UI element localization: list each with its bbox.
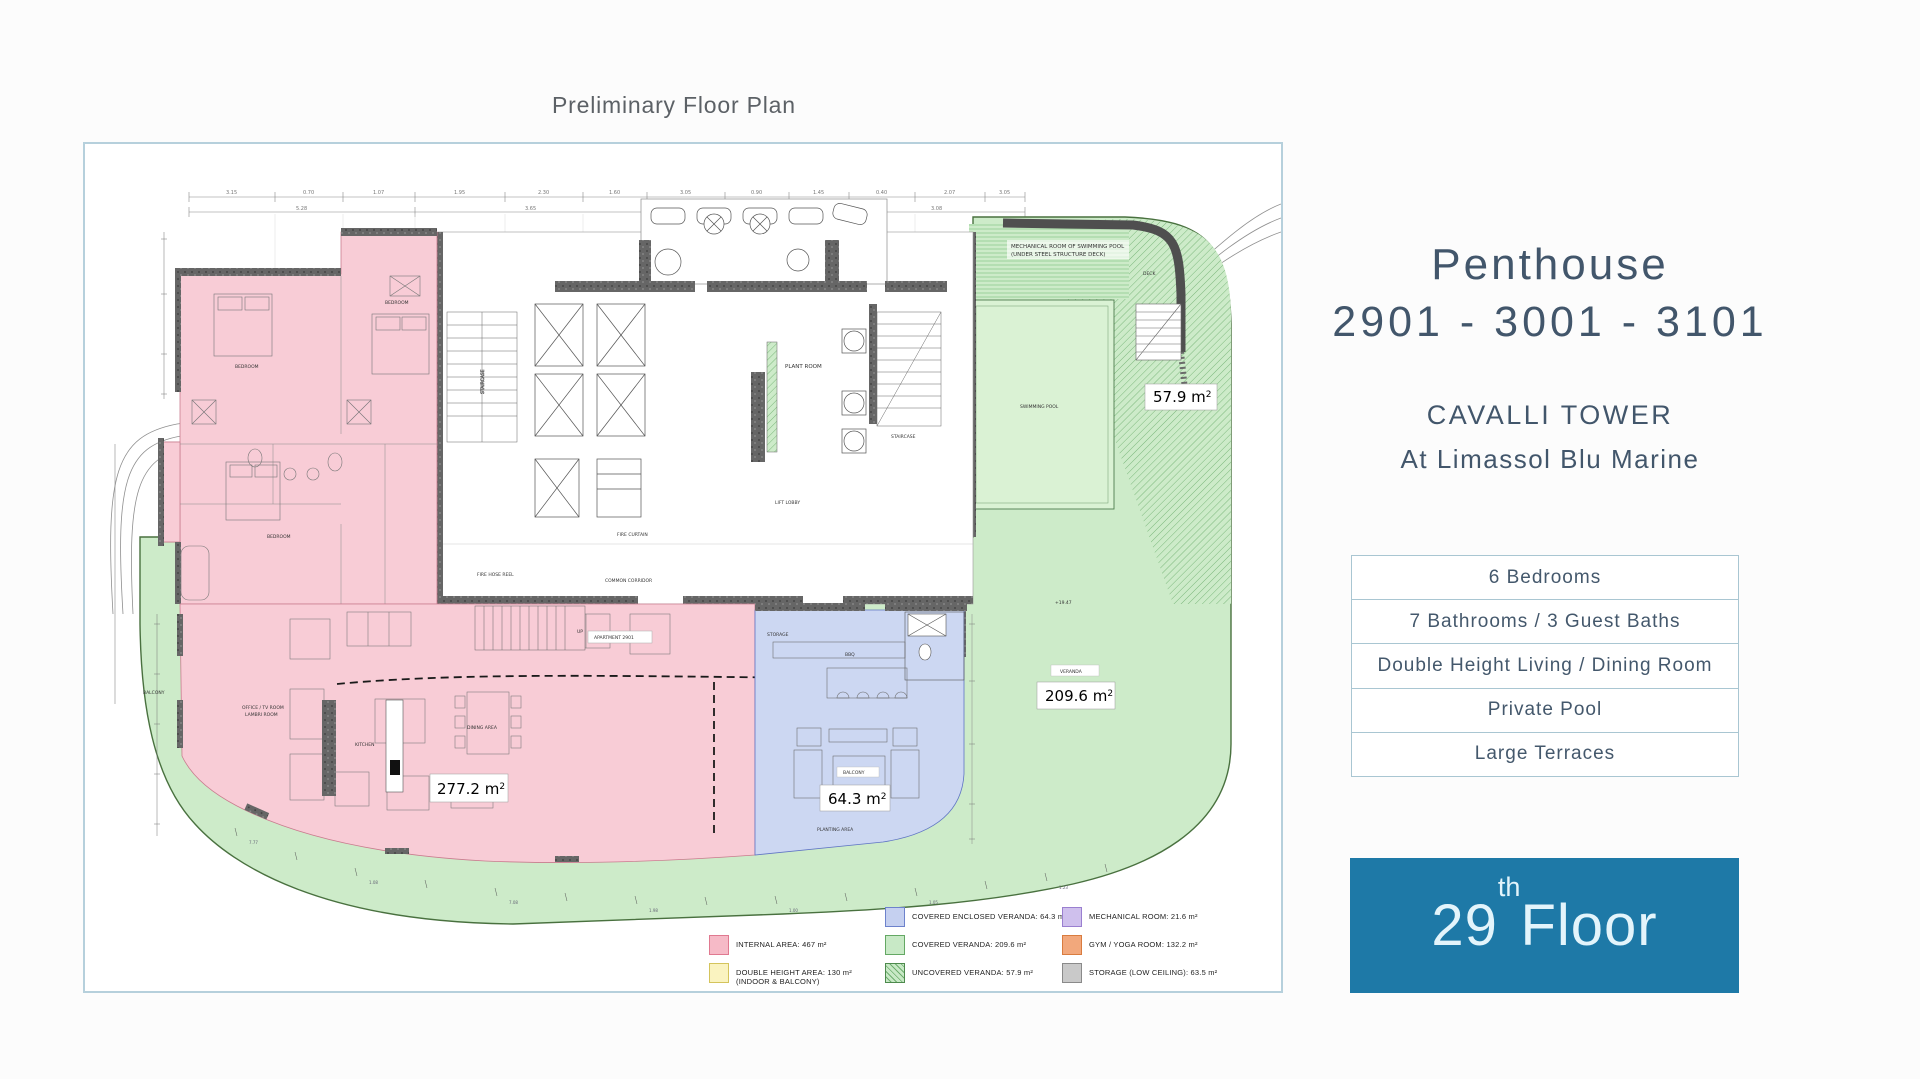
office-label-1: OFFICE / TV ROOM [242, 705, 284, 711]
dimension-number: 2.07 [944, 190, 955, 196]
dimension-number: 3.08 [931, 206, 942, 212]
dimension-number: 0.90 [751, 190, 762, 196]
up-label: UP [577, 629, 583, 635]
legend-item: STORAGE (LOW CEILING): 63.5 m² [1062, 963, 1217, 983]
dimension-number: 7.77 [249, 840, 258, 845]
dimension-number: 5.28 [296, 206, 307, 212]
fire-hose-label: FIRE HOSE REEL [477, 572, 514, 578]
veranda-label: VERANDA [1060, 669, 1083, 675]
feature-bathrooms: 7 Bathrooms / 3 Guest Baths [1352, 599, 1738, 643]
dimension-number: 1.07 [373, 190, 384, 196]
dining-label: DINING AREA [467, 725, 498, 731]
legend-item: COVERED VERANDA: 209.6 m² [885, 935, 1026, 955]
balcony-rug-label: BALCONY [843, 770, 865, 776]
core-staircase-west: STAIRCASE [447, 312, 517, 442]
covered-enclosed-veranda-area: STORAGE BBQ BALCONY 64.3 m2 PLANTING ARE… [755, 603, 967, 855]
legend-swatch-double-height-area [709, 963, 729, 983]
dimension-number: 0.70 [303, 190, 314, 196]
floor-number: 29 [1431, 892, 1498, 959]
kitchen-label: KITCHEN [355, 742, 375, 748]
dimension-number: 1.60 [609, 190, 620, 196]
living-staircase [475, 606, 585, 650]
dimension-number: 1.05 [929, 900, 938, 905]
legend-item: MECHANICAL ROOM: 21.6 m² [1062, 907, 1198, 927]
floor-plan-drawing: 3.150.701.071.952.301.603.050.901.450.40… [85, 144, 1281, 991]
legend-item: INTERNAL AREA: 467 m² [709, 935, 827, 955]
staircase-label: STAIRCASE [480, 369, 486, 394]
lift-lobby-label: LIFT LOBBY [775, 500, 800, 506]
legend-swatch-internal-area [709, 935, 729, 955]
dimension-number: 7.08 [509, 900, 518, 905]
bedroom1-label: BEDROOM [235, 364, 259, 370]
dimension-number: 0.40 [876, 190, 887, 196]
penthouse-title: Penthouse [1300, 240, 1800, 290]
apartment-label: APARTMENT 2901 [594, 635, 634, 641]
building-location: At Limassol Blu Marine [1300, 444, 1800, 475]
balcony-label: BALCONY [143, 690, 165, 696]
legend-swatch-covered-veranda [885, 935, 905, 955]
legend-swatch-uncovered-veranda [885, 963, 905, 983]
mechanical-room-label-2: (UNDER STEEL STRUCTURE DECK) [1011, 252, 1105, 258]
penthouse-units: 2901 - 3001 - 3101 [1300, 298, 1800, 347]
legend-swatch-gym-yoga-room [1062, 935, 1082, 955]
deck-label: DECK [1143, 271, 1156, 277]
office-label-2: LAMBRI ROOM [245, 712, 278, 718]
page: Preliminary Floor Plan [0, 0, 1920, 1079]
plant-room-label: PLANT ROOM [785, 364, 822, 370]
storage-label: STORAGE [767, 632, 789, 638]
floor-suffix: th [1498, 872, 1521, 903]
dimension-number: 1.08 [369, 880, 378, 885]
enclosed-veranda-area-label: 64.3 m2 [828, 790, 887, 808]
common-corridor-label: COMMON CORRIDOR [605, 578, 652, 584]
bedroom2-label: BEDROOM [385, 300, 409, 306]
dimension-number: 1.98 [649, 908, 658, 913]
legend-swatch-storage [1062, 963, 1082, 983]
feature-private-pool: Private Pool [1352, 688, 1738, 732]
uncovered-veranda-area-label: 57.9 m2 [1153, 388, 1212, 406]
dimension-number: 3.05 [999, 190, 1010, 196]
floor-plan: 3.150.701.071.952.301.603.050.901.450.40… [83, 142, 1283, 993]
legend-item: COVERED ENCLOSED VERANDA: 64.3 m² [885, 907, 1067, 927]
dimension-number: 1.00 [789, 908, 798, 913]
planting-area-label: PLANTING AREA [817, 827, 854, 833]
staircase2-label: STAIRCASE [891, 434, 916, 440]
legend-item: GYM / YOGA ROOM: 132.2 m² [1062, 935, 1198, 955]
floor-word: Floor [1520, 892, 1657, 959]
dimension-number: 3.05 [680, 190, 691, 196]
dimension-number: 3.65 [525, 206, 536, 212]
feature-large-terraces: Large Terraces [1352, 732, 1738, 776]
dimension-number: 3.15 [226, 190, 237, 196]
internal-area-label: 277.2 m2 [437, 780, 505, 798]
deck-staircase [1136, 304, 1181, 360]
mechanical-room-label: MECHANICAL ROOM OF SWIMMING POOL [1011, 244, 1125, 250]
internal-area-bedrooms: BEDROOM BEDROOM BEDROOM [158, 228, 437, 604]
penthouse-heading: Penthouse 2901 - 3001 - 3101 [1300, 240, 1800, 347]
dimension-number: 2.30 [538, 190, 549, 196]
bbq-label: BBQ [845, 652, 855, 658]
core-staircase-east [877, 312, 941, 426]
covered-veranda-area-label: 209.6 m2 [1045, 687, 1113, 705]
page-title: Preliminary Floor Plan [552, 92, 796, 119]
fire-curtain-label: FIRE CURTAIN [617, 532, 648, 538]
legend-swatch-mechanical-room [1062, 907, 1082, 927]
bedroom3-label: BEDROOM [267, 534, 291, 540]
legend-item: UNCOVERED VERANDA: 57.9 m² [885, 963, 1033, 983]
feature-bedrooms: 6 Bedrooms [1352, 556, 1738, 599]
legend-item: DOUBLE HEIGHT AREA: 130 m²(INDOOR & BALC… [709, 963, 852, 986]
legend-swatch-covered-enclosed-veranda [885, 907, 905, 927]
feature-living-dining: Double Height Living / Dining Room [1352, 643, 1738, 687]
features-table: 6 Bedrooms 7 Bathrooms / 3 Guest Baths D… [1351, 555, 1739, 777]
floor-banner: 29thFloor [1350, 858, 1739, 993]
elevation-marker: +19.47 [1055, 600, 1072, 606]
dimension-number: 1.23 [1059, 885, 1068, 890]
building-core: STAIRCASE [435, 199, 973, 604]
dimension-number: 1.95 [454, 190, 465, 196]
building-name: CAVALLI TOWER [1300, 400, 1800, 431]
dimension-number: 1.45 [813, 190, 824, 196]
swimming-pool-label: SWIMMING POOL [1020, 404, 1059, 410]
